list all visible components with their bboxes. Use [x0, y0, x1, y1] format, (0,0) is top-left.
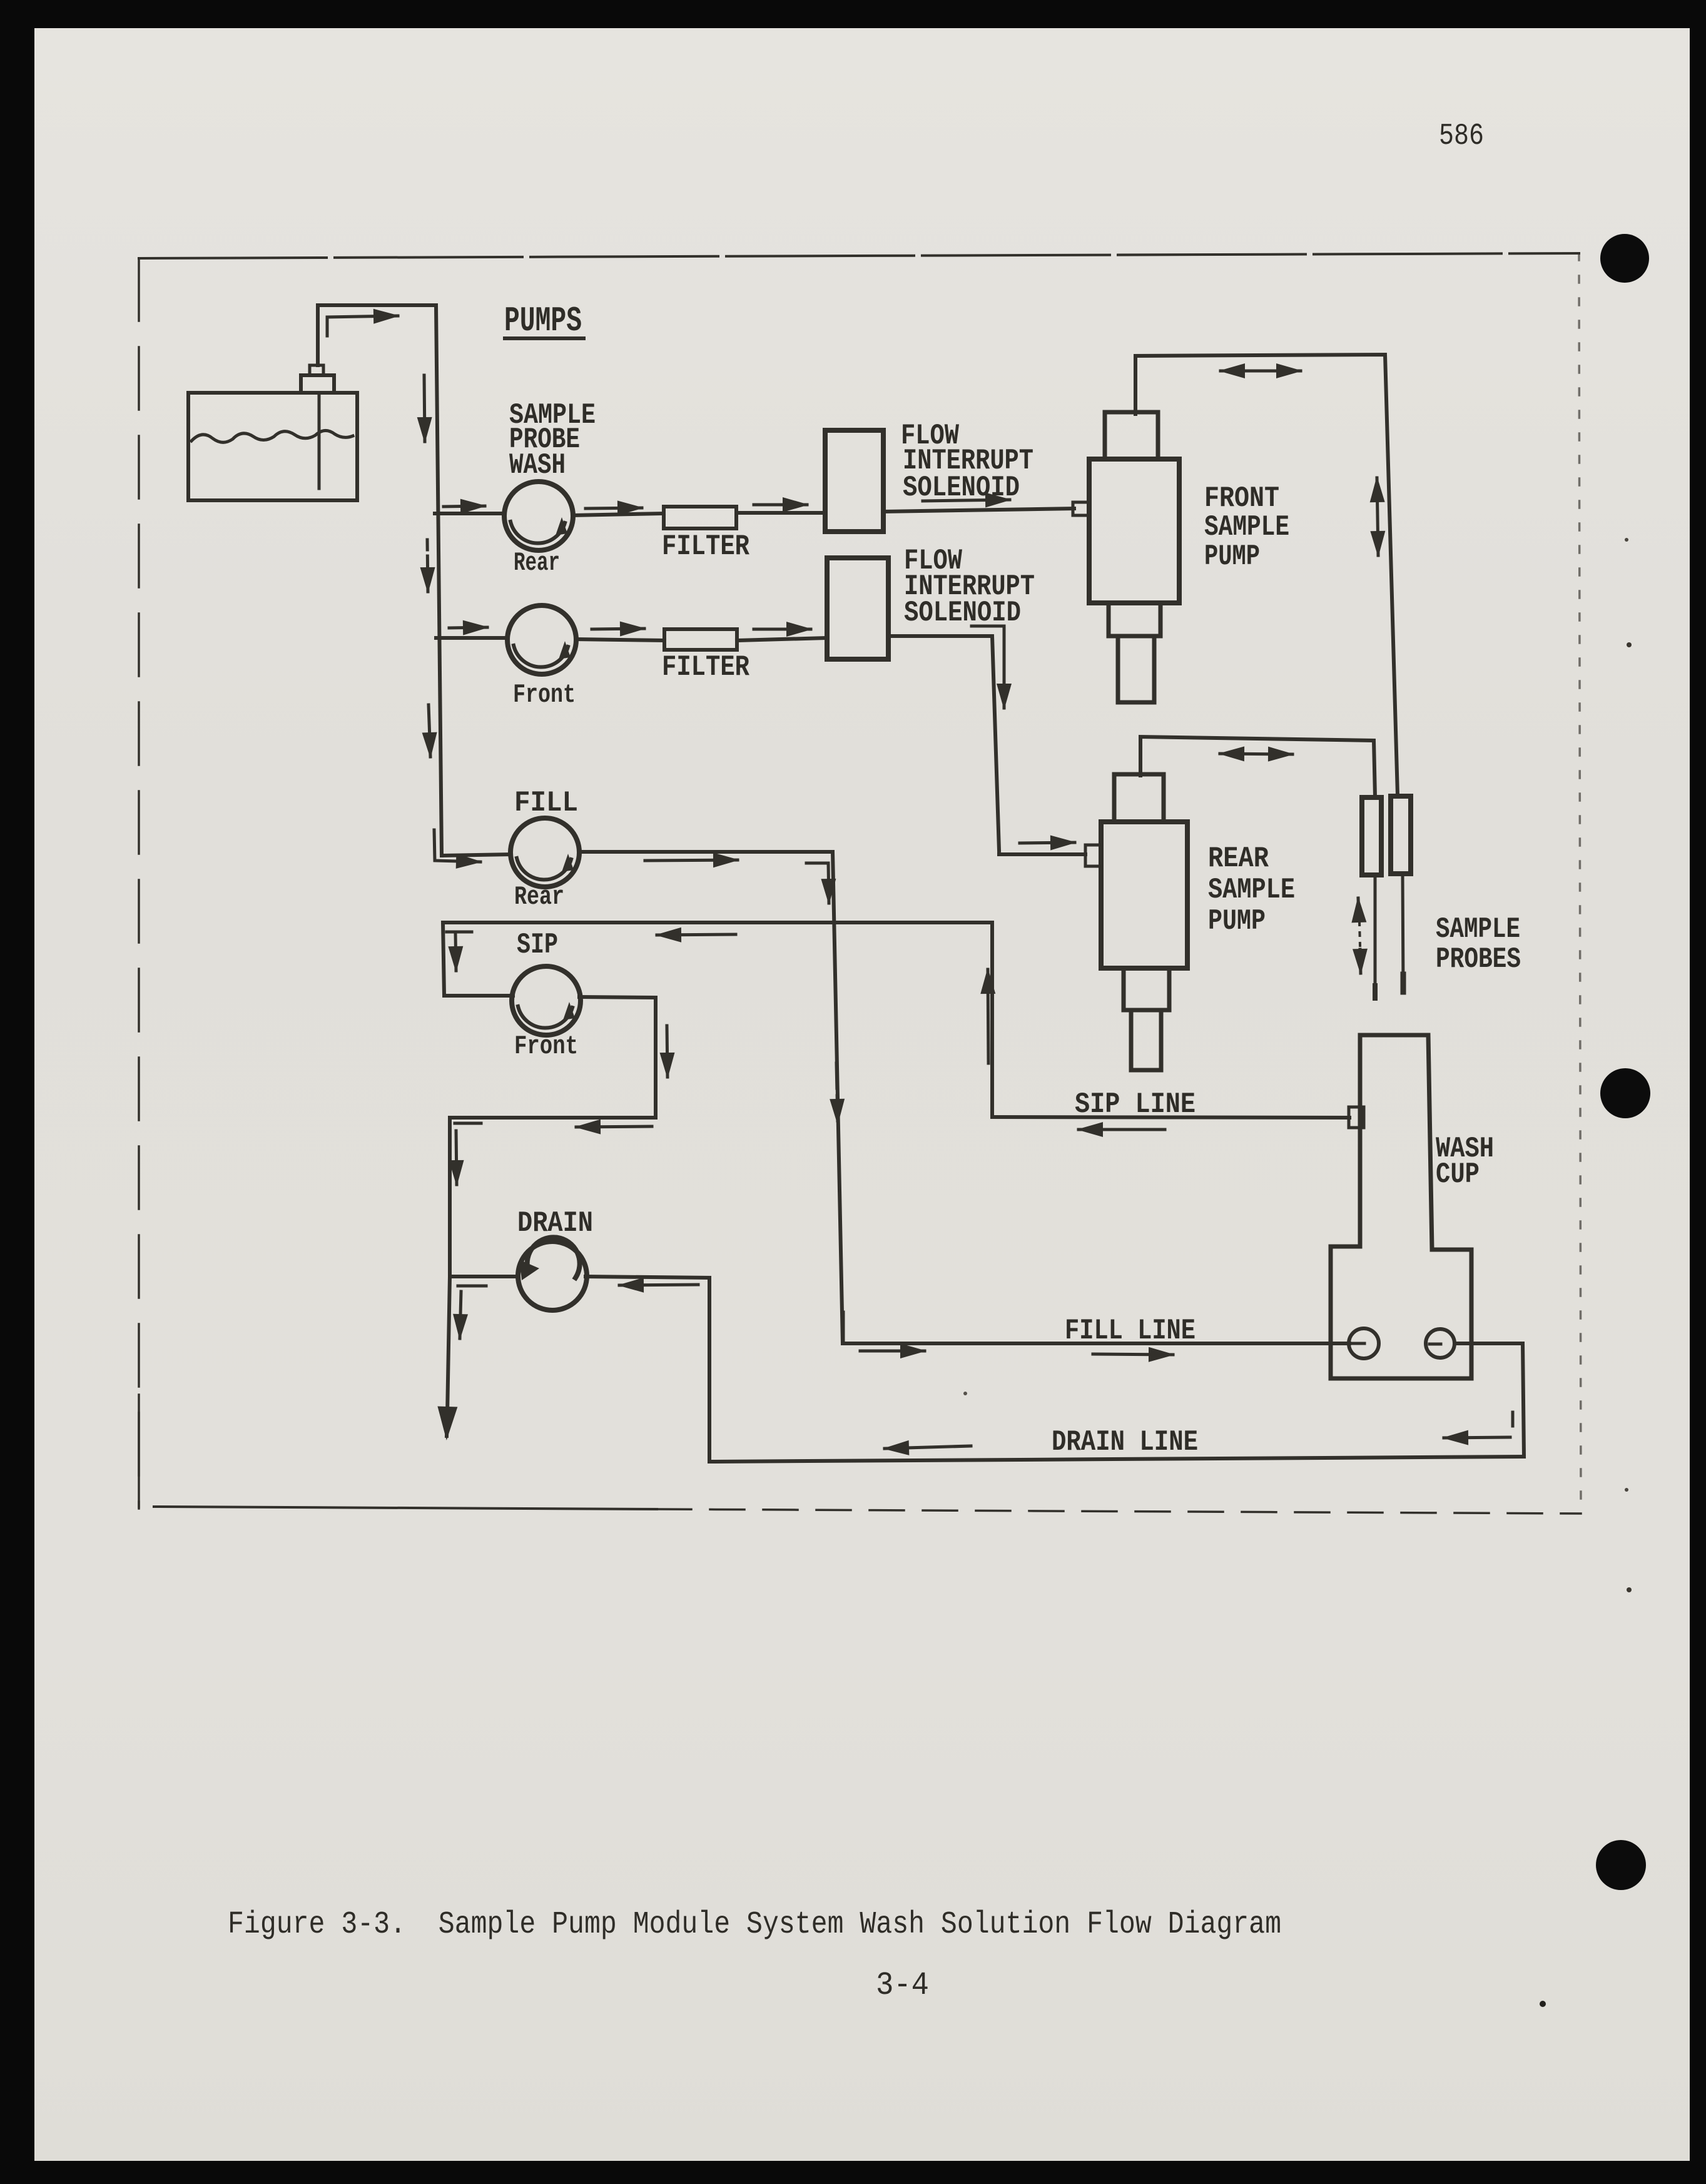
svg-text:FILTER: FILTER [662, 651, 749, 684]
svg-text:FILL: FILL [514, 787, 578, 819]
svg-text:Figure 3-3. Sample Pump Modul: Figure 3-3. Sample Pump Module System Wa… [228, 1907, 1281, 1943]
svg-text:SOLENOID: SOLENOID [903, 472, 1020, 504]
svg-text:WASH: WASH [509, 449, 566, 482]
svg-text:PUMP: PUMP [1208, 905, 1266, 938]
svg-text:SAMPLE: SAMPLE [1204, 511, 1289, 543]
svg-text:FILTER: FILTER [662, 530, 749, 563]
svg-text:SAMPLE: SAMPLE [1436, 913, 1520, 946]
svg-text:REAR: REAR [1208, 842, 1269, 875]
svg-text:3-4: 3-4 [876, 1967, 929, 2004]
svg-text:DRAIN: DRAIN [517, 1207, 593, 1240]
svg-text:Front: Front [513, 680, 576, 710]
svg-text:SIP LINE: SIP LINE [1075, 1088, 1196, 1121]
svg-text:PUMPS: PUMPS [504, 301, 582, 341]
svg-text:PUMP: PUMP [1204, 540, 1260, 573]
svg-text:SAMPLE: SAMPLE [1208, 874, 1295, 906]
svg-text:SOLENOID: SOLENOID [904, 597, 1021, 629]
svg-text:SIP: SIP [517, 929, 558, 961]
svg-text:FRONT: FRONT [1204, 482, 1279, 515]
svg-text:DRAIN LINE: DRAIN LINE [1052, 1426, 1198, 1459]
svg-text:Rear: Rear [514, 882, 564, 912]
svg-text:586: 586 [1439, 119, 1484, 153]
svg-text:PROBES: PROBES [1436, 943, 1521, 976]
svg-text:CUP: CUP [1436, 1158, 1480, 1191]
svg-text:FILL LINE: FILL LINE [1065, 1315, 1196, 1347]
svg-text:Rear: Rear [514, 548, 560, 578]
svg-text:Front: Front [514, 1031, 578, 1061]
